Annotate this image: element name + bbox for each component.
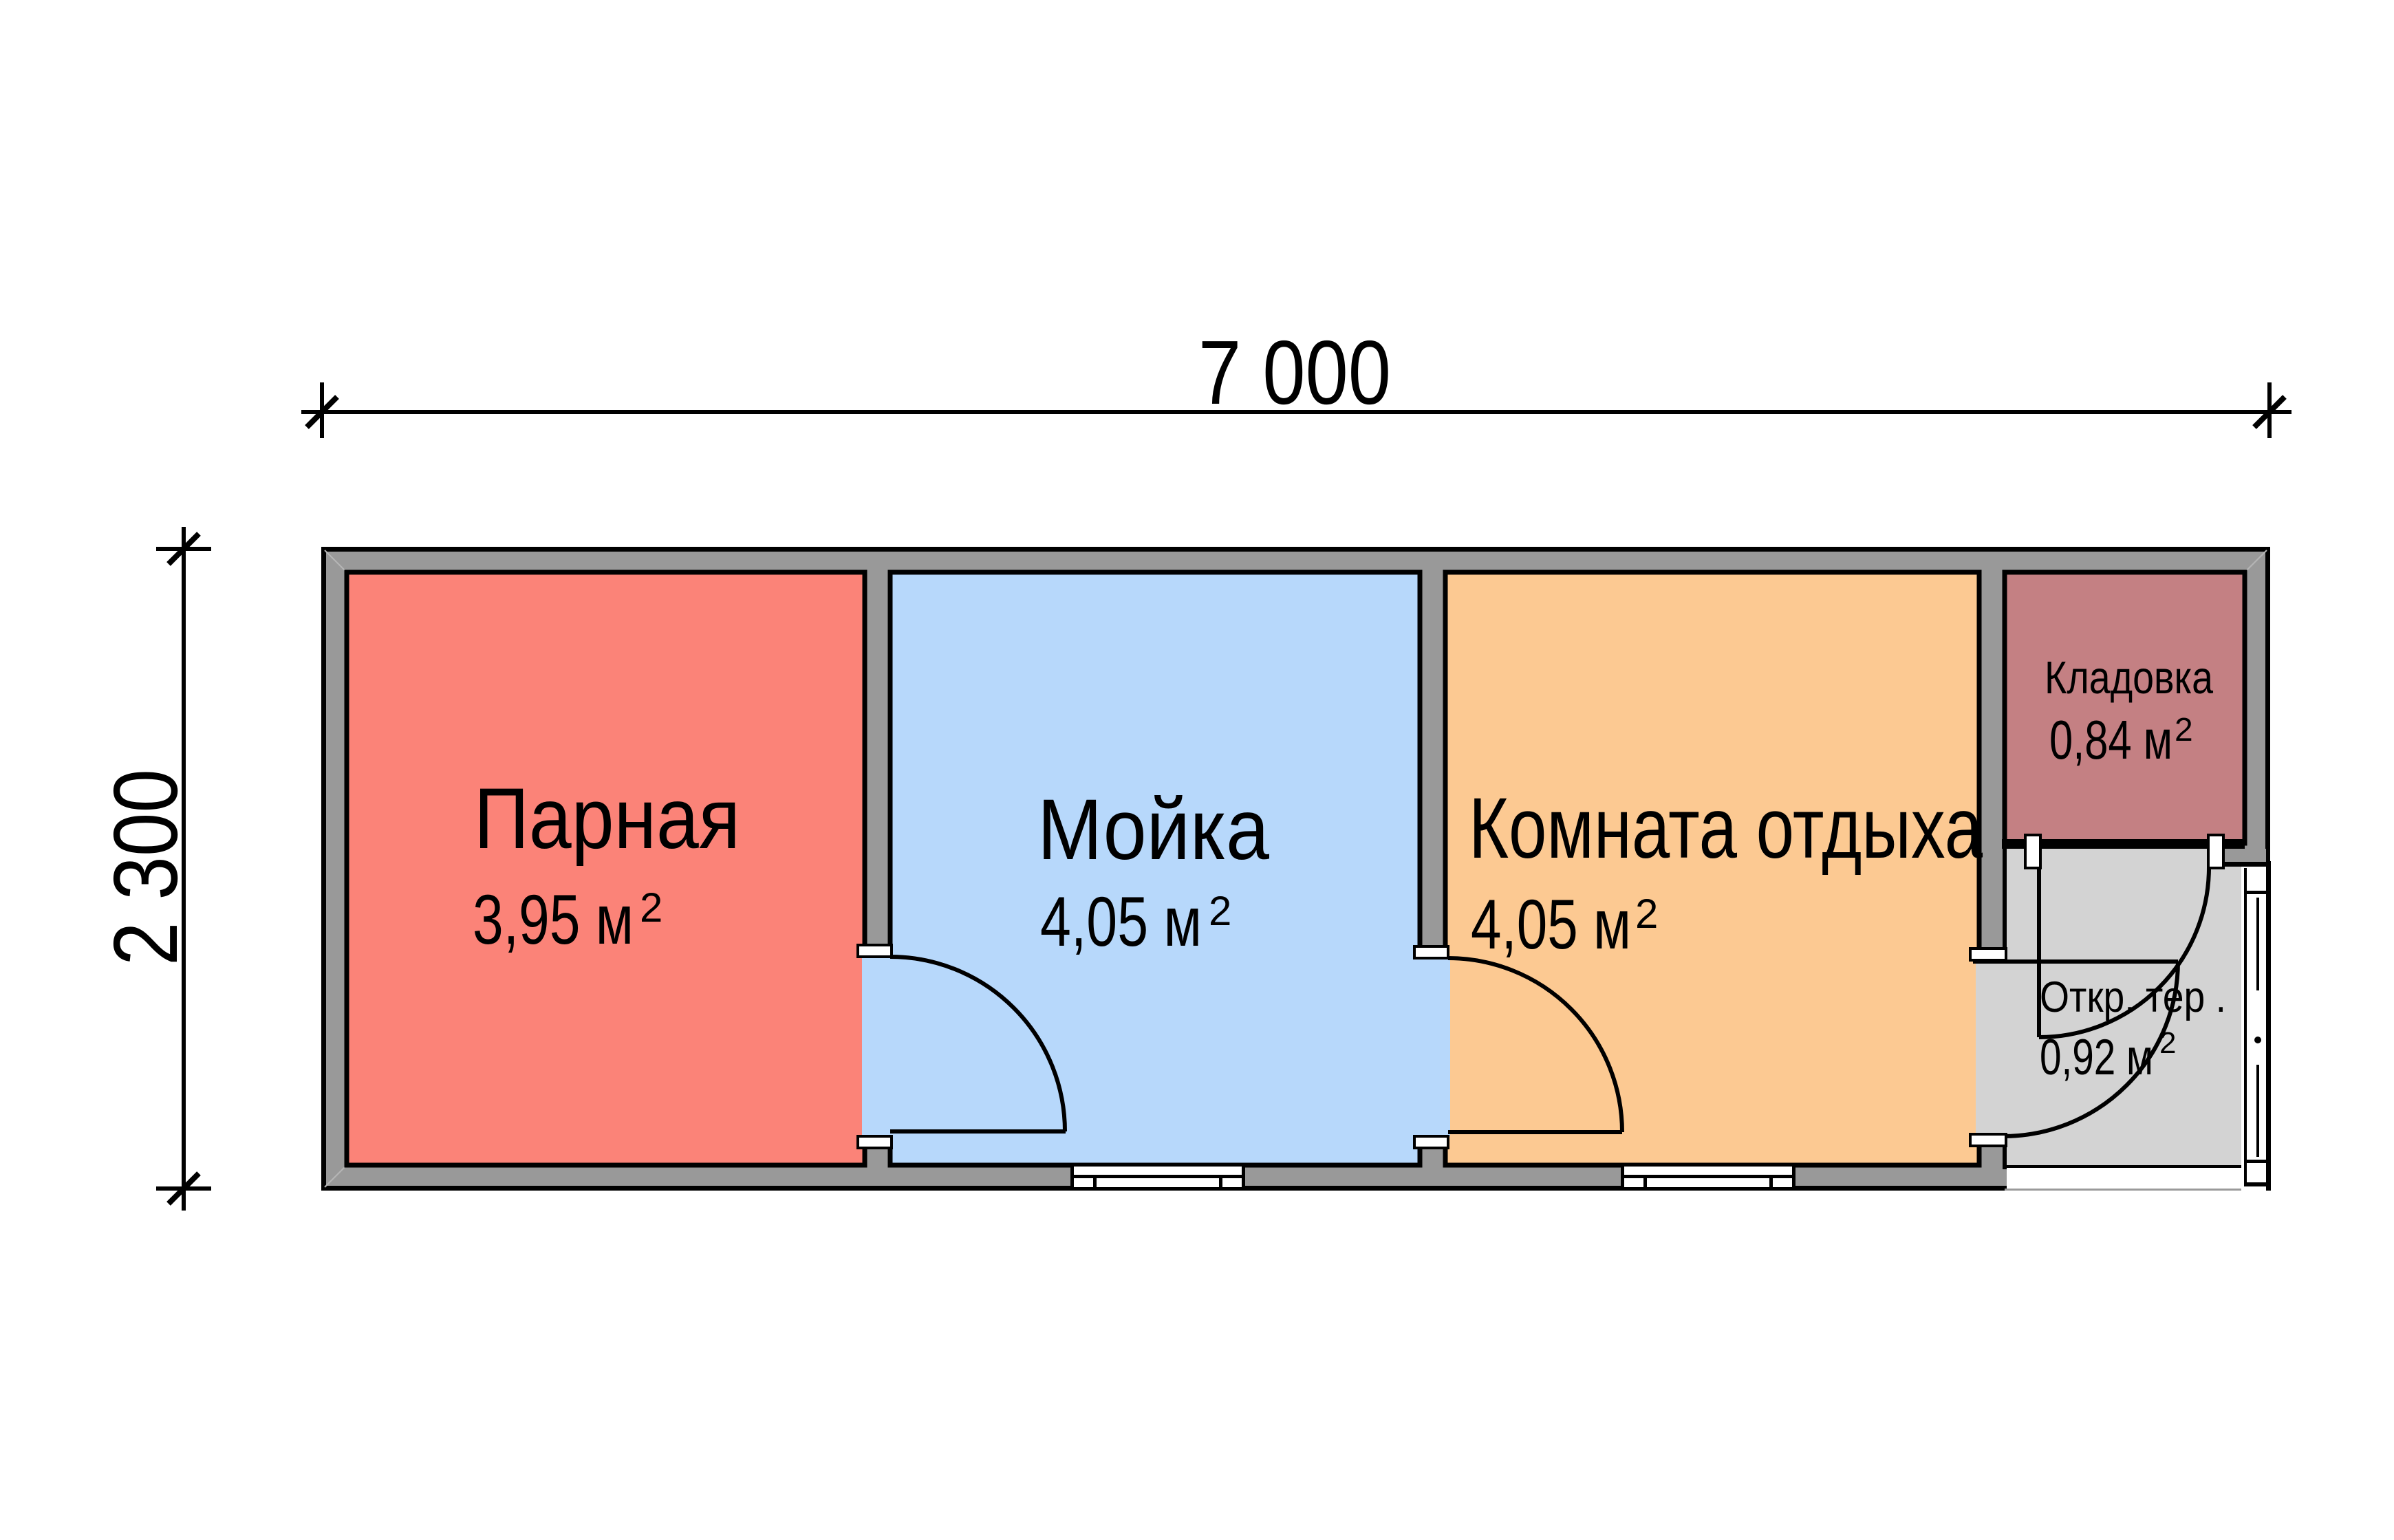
svg-text:Кладовка: Кладовка [2045, 652, 2214, 704]
svg-text:2: 2 [640, 885, 662, 931]
svg-text:2: 2 [2175, 712, 2193, 748]
svg-text:4,05 м: 4,05 м [1471, 885, 1631, 964]
svg-text:Парная: Парная [474, 771, 740, 867]
svg-text:4,05 м: 4,05 м [1040, 882, 1202, 961]
svg-text:Мойка: Мойка [1037, 782, 1269, 878]
svg-text:0,92 м: 0,92 м [2040, 1030, 2153, 1085]
svg-text:7 000: 7 000 [1198, 322, 1391, 423]
svg-text:2: 2 [1635, 891, 1658, 937]
svg-text:2: 2 [1209, 888, 1231, 934]
svg-text:Комната отдыха: Комната отдыха [1469, 781, 1983, 876]
svg-text:Откр. тер .: Откр. тер . [2040, 973, 2226, 1021]
svg-text:0,84 м: 0,84 м [2049, 709, 2172, 770]
svg-text:3,95 м: 3,95 м [473, 880, 634, 959]
svg-text:2 300: 2 300 [95, 769, 196, 966]
svg-text:2: 2 [2159, 1026, 2176, 1060]
